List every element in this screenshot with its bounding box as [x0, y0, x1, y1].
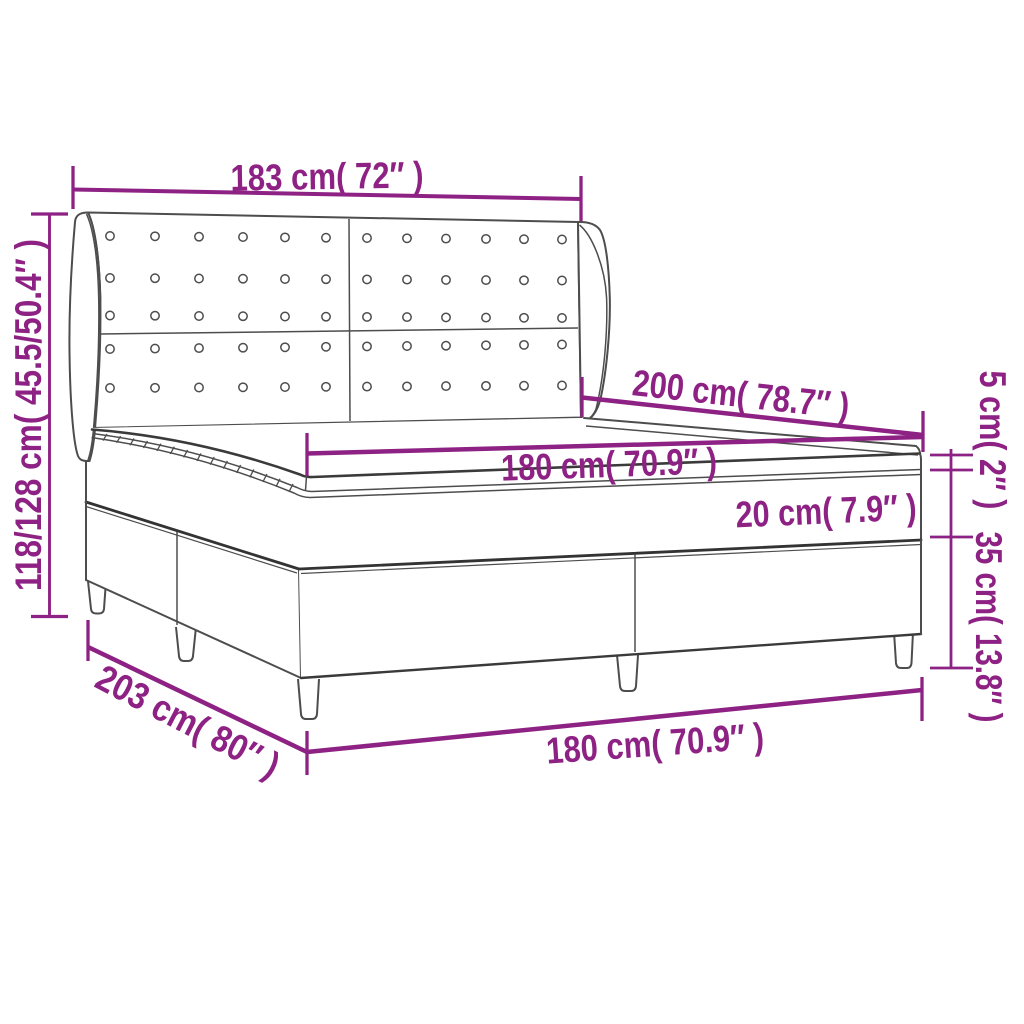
svg-text:118/128 cm( 45.5/50.4″ ): 118/128 cm( 45.5/50.4″ ) — [8, 239, 49, 591]
svg-text:5 cm( 2″ ): 5 cm( 2″ ) — [972, 371, 1013, 510]
svg-text:183 cm( 72″ ): 183 cm( 72″ ) — [230, 154, 424, 198]
svg-text:180 cm( 70.9″ ): 180 cm( 70.9″ ) — [500, 440, 717, 489]
svg-text:35 cm( 13.8″ ): 35 cm( 13.8″ ) — [968, 532, 1009, 723]
svg-text:20 cm( 7.9″ ): 20 cm( 7.9″ ) — [735, 487, 918, 536]
